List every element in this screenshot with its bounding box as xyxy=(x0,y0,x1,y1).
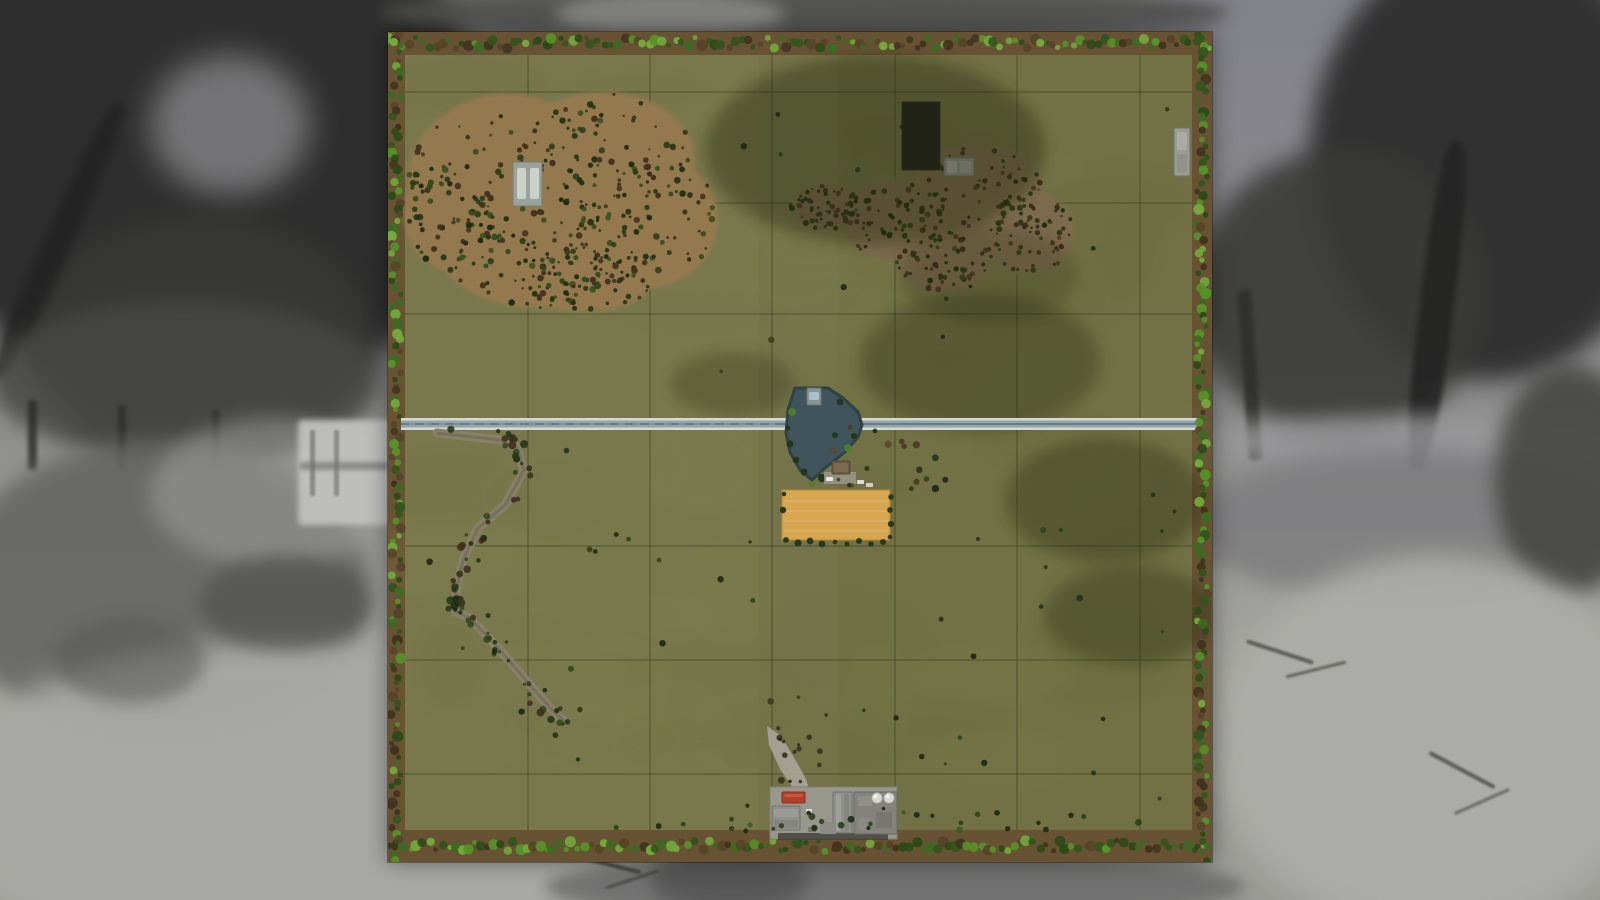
porch-post-2 xyxy=(334,430,339,496)
tree-trunk-row-1 xyxy=(28,400,37,470)
light-path-bottom-right xyxy=(1215,555,1600,900)
sky-gap-top-left xyxy=(150,55,310,195)
farm-shed-small xyxy=(772,806,800,830)
picnic-shed xyxy=(832,461,850,474)
map-canvas xyxy=(388,32,1212,862)
forest-building xyxy=(513,162,542,206)
porch-post-1 xyxy=(310,430,315,496)
orange-field xyxy=(780,490,894,547)
path-dark-patch-1 xyxy=(200,555,370,650)
path-dark-patch-2 xyxy=(55,618,205,703)
game-viewport xyxy=(0,0,1600,900)
farm-building-red-roof xyxy=(782,792,805,803)
map-overlay-panel[interactable] xyxy=(388,32,1212,862)
east-edge-building xyxy=(1174,128,1190,176)
boat-dock xyxy=(807,388,821,405)
